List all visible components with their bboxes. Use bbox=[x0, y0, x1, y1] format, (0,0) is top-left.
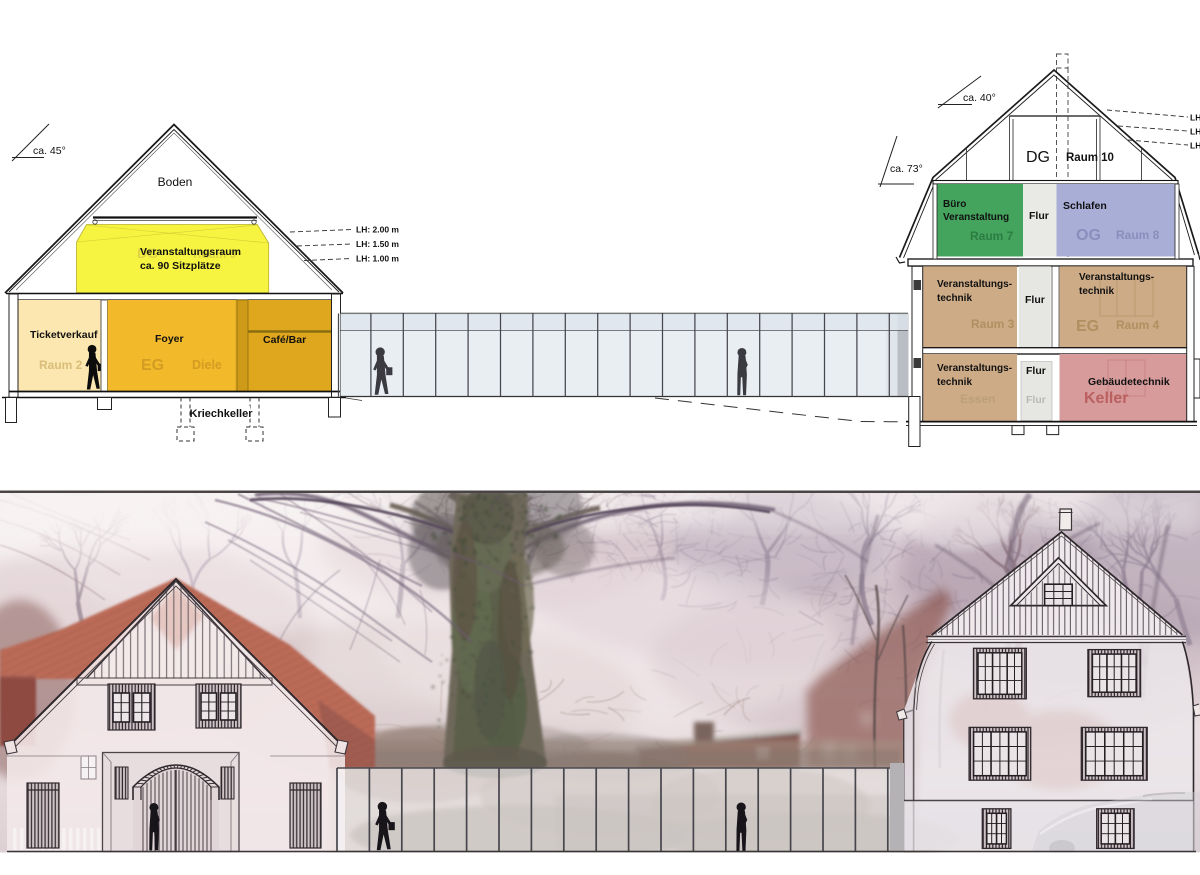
svg-text:Raum 2: Raum 2 bbox=[39, 358, 83, 372]
svg-text:Schlafen: Schlafen bbox=[1063, 200, 1107, 212]
svg-text:Flur: Flur bbox=[1026, 394, 1046, 406]
svg-text:LH:: LH: bbox=[1190, 127, 1200, 137]
svg-text:LH:: LH: bbox=[1190, 113, 1200, 123]
svg-text:Flur: Flur bbox=[1029, 210, 1049, 222]
svg-text:Veranstaltung: Veranstaltung bbox=[943, 212, 1009, 223]
svg-text:technik: technik bbox=[937, 377, 972, 388]
svg-text:Boden: Boden bbox=[158, 175, 193, 189]
svg-text:Veranstaltungs-: Veranstaltungs- bbox=[1079, 272, 1154, 283]
svg-text:LH:: LH: bbox=[1190, 141, 1200, 151]
svg-text:ca. 45°: ca. 45° bbox=[33, 145, 66, 157]
svg-text:Foyer: Foyer bbox=[155, 333, 184, 345]
svg-text:Veranstaltungs-: Veranstaltungs- bbox=[937, 279, 1012, 290]
svg-text:LH: 1.00 m: LH: 1.00 m bbox=[356, 254, 399, 264]
svg-text:Gebäudetechnik: Gebäudetechnik bbox=[1088, 376, 1170, 388]
svg-text:technik: technik bbox=[937, 293, 972, 304]
svg-text:LH: 1.50 m: LH: 1.50 m bbox=[356, 239, 399, 249]
svg-text:Ticketverkauf: Ticketverkauf bbox=[30, 329, 98, 341]
svg-text:DG: DG bbox=[1026, 149, 1050, 166]
svg-text:Raum 8: Raum 8 bbox=[1116, 228, 1160, 242]
svg-text:Büro: Büro bbox=[943, 199, 966, 210]
svg-text:Raum 4: Raum 4 bbox=[1116, 318, 1160, 332]
svg-text:Flur: Flur bbox=[1025, 294, 1045, 306]
svg-text:Raum 7: Raum 7 bbox=[970, 229, 1014, 243]
svg-text:EG: EG bbox=[141, 357, 164, 374]
svg-text:Flur: Flur bbox=[1026, 365, 1046, 377]
svg-text:technik: technik bbox=[1079, 286, 1114, 297]
svg-text:Veranstaltungsraum: Veranstaltungsraum bbox=[140, 246, 241, 258]
svg-text:Veranstaltungs-: Veranstaltungs- bbox=[937, 363, 1012, 374]
svg-text:EG: EG bbox=[1076, 318, 1099, 335]
svg-text:Raum 3: Raum 3 bbox=[971, 317, 1015, 331]
svg-text:ca. 40°: ca. 40° bbox=[963, 92, 996, 104]
svg-text:Essen: Essen bbox=[960, 392, 995, 406]
svg-text:Café/Bar: Café/Bar bbox=[263, 334, 306, 346]
svg-text:Diele: Diele bbox=[192, 358, 222, 372]
svg-text:ca. 90 Sitzplätze: ca. 90 Sitzplätze bbox=[140, 260, 221, 272]
svg-text:Kriechkeller: Kriechkeller bbox=[190, 408, 254, 420]
svg-text:LH: 2.00 m: LH: 2.00 m bbox=[356, 225, 399, 235]
svg-text:OG: OG bbox=[1076, 227, 1101, 244]
svg-text:Raum 10: Raum 10 bbox=[1066, 152, 1114, 164]
svg-text:ca. 73°: ca. 73° bbox=[890, 163, 923, 175]
svg-text:Keller: Keller bbox=[1084, 390, 1128, 407]
